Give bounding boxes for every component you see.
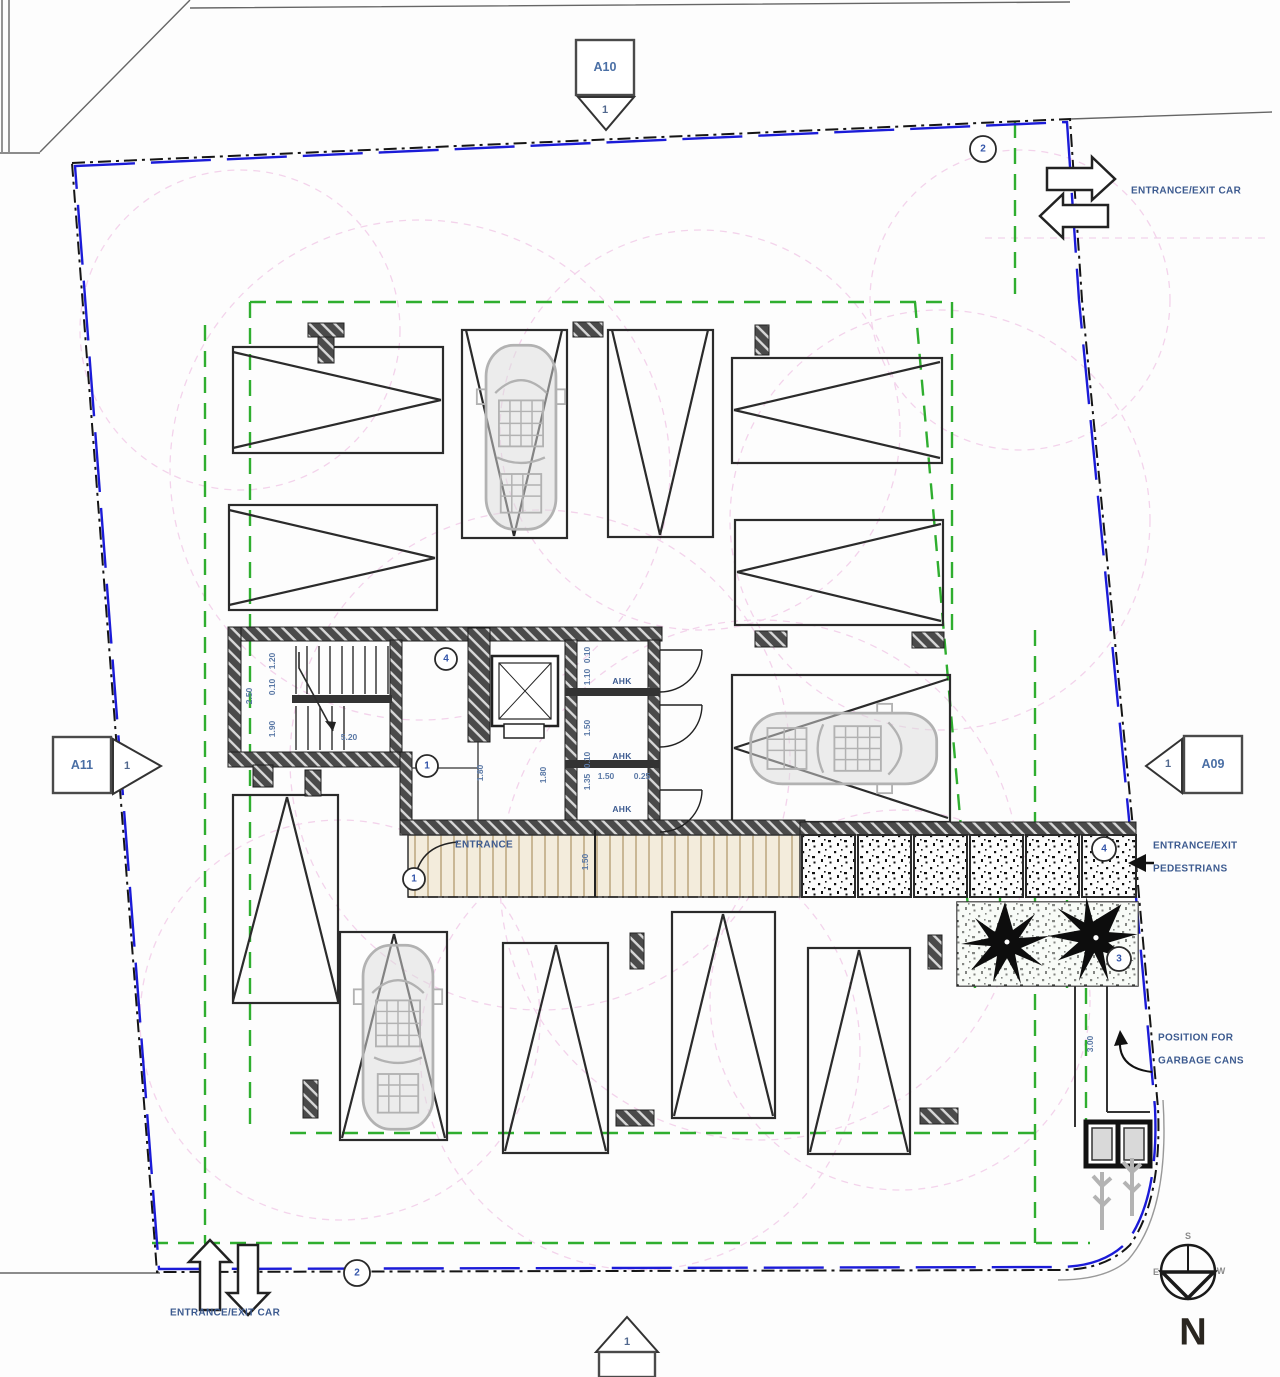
- interior-partitions: [412, 742, 478, 820]
- stall: [233, 795, 338, 1003]
- arrow-down-icon: [227, 1245, 269, 1315]
- car-bottom: [354, 945, 442, 1129]
- label-garbage-2: GARBAGE CANS: [1158, 1056, 1244, 1067]
- planter-box: [970, 835, 1023, 897]
- car-arrows-top: [1040, 157, 1115, 238]
- stall: [229, 505, 437, 610]
- planter-box: [858, 835, 911, 897]
- dim-closet-gap: 0.25: [634, 771, 651, 781]
- marker-a10-label: A10: [594, 60, 617, 74]
- site-plan-drawing: [0, 0, 1280, 1377]
- label-entrance-exit-car-bottom: ENTRANCE/EXIT CAR: [170, 1308, 280, 1319]
- dim-room-1: 1.80: [475, 765, 485, 782]
- dim-stair-length: 5.20: [341, 732, 358, 742]
- dim-stair-d1: 1.20: [267, 653, 277, 670]
- label-entrance: ENTRANCE: [455, 840, 513, 851]
- stall: [233, 347, 443, 453]
- keynote-bottom: 2: [354, 1268, 360, 1279]
- closet-doors: [660, 650, 702, 832]
- dim-garbage-path: 3.00: [1085, 1036, 1095, 1053]
- compass-east-label: E: [1153, 1267, 1159, 1277]
- stall: [608, 330, 713, 537]
- car-top: [477, 345, 565, 529]
- marker-a11-label: A11: [71, 758, 93, 772]
- dim-stair-width: 2.50: [244, 688, 254, 705]
- keynote-circles: [344, 136, 1131, 1286]
- label-ahk-1: AHK: [612, 676, 631, 686]
- north-compass-icon: [1161, 1245, 1215, 1299]
- planter-box: [802, 835, 855, 897]
- marker-bottom-number: 1: [624, 1336, 630, 1348]
- stall: [672, 912, 775, 1118]
- dim-stair-d2: 0.10: [267, 679, 277, 696]
- stall: [735, 520, 943, 625]
- dim-room-2: 1.80: [538, 767, 548, 784]
- label-entrance-exit-car-top: ENTRANCE/EXIT CAR: [1131, 186, 1241, 197]
- dim-walkway-width: 1.50: [580, 854, 590, 871]
- dim-chain-5: 1.35: [582, 774, 592, 791]
- keynote-garden: 3: [1116, 954, 1122, 965]
- stall: [732, 358, 942, 463]
- north-label: N: [1179, 1312, 1206, 1355]
- dim-closet-width: 1.50: [598, 771, 615, 781]
- keynote-planter: 4: [1101, 844, 1107, 855]
- elevator: [492, 656, 558, 738]
- planter-box: [1026, 835, 1079, 897]
- stall: [503, 943, 608, 1153]
- marker-a09-label: A09: [1202, 757, 1225, 771]
- marker-a10-number: 1: [602, 104, 608, 116]
- keynote-walkway: 1: [411, 874, 417, 885]
- label-ahk-2: AHK: [612, 751, 631, 761]
- keynote-stair-lower: 1: [424, 761, 430, 772]
- dim-stair-d3: 1.90: [267, 721, 277, 738]
- marker-a09-number: 1: [1165, 758, 1171, 770]
- marker-a11-number: 1: [124, 760, 130, 772]
- label-pedestrians-1: ENTRANCE/EXIT: [1153, 841, 1237, 852]
- section-marker-a10: [576, 40, 634, 130]
- section-marker-a09: [1146, 736, 1242, 793]
- dim-chain-1: 0.10: [582, 647, 592, 664]
- garbage-arrow: [1114, 1030, 1152, 1072]
- dim-chain-2: 1.10: [582, 669, 592, 686]
- label-pedestrians-2: PEDESTRIANS: [1153, 864, 1227, 875]
- car-arrows-bottom: [189, 1240, 269, 1315]
- turning-radius-arcs: [80, 150, 1270, 1270]
- section-marker-a11: [53, 737, 161, 794]
- dim-chain-4: 0.10: [582, 752, 592, 769]
- planter-box: [914, 835, 967, 897]
- arrow-up-icon: [189, 1240, 231, 1310]
- compass-west-label: W: [1217, 1266, 1226, 1276]
- stall: [808, 948, 910, 1154]
- building-core: [228, 627, 805, 836]
- shrub-icon: [1123, 1158, 1141, 1216]
- site-plan-page: A10 1 A11 1 A09 1 1 ENTRANCE/EXIT CAR EN…: [0, 0, 1280, 1377]
- dim-chain-3: 1.50: [582, 720, 592, 737]
- keynote-top-right: 2: [980, 144, 986, 155]
- car-accessible: [751, 704, 937, 793]
- shrub-icon: [1093, 1172, 1111, 1230]
- compass-south-label: S: [1185, 1231, 1191, 1241]
- label-garbage-1: POSITION FOR: [1158, 1033, 1233, 1044]
- keynote-stair-upper: 4: [443, 654, 449, 665]
- label-ahk-3: AHK: [612, 804, 631, 814]
